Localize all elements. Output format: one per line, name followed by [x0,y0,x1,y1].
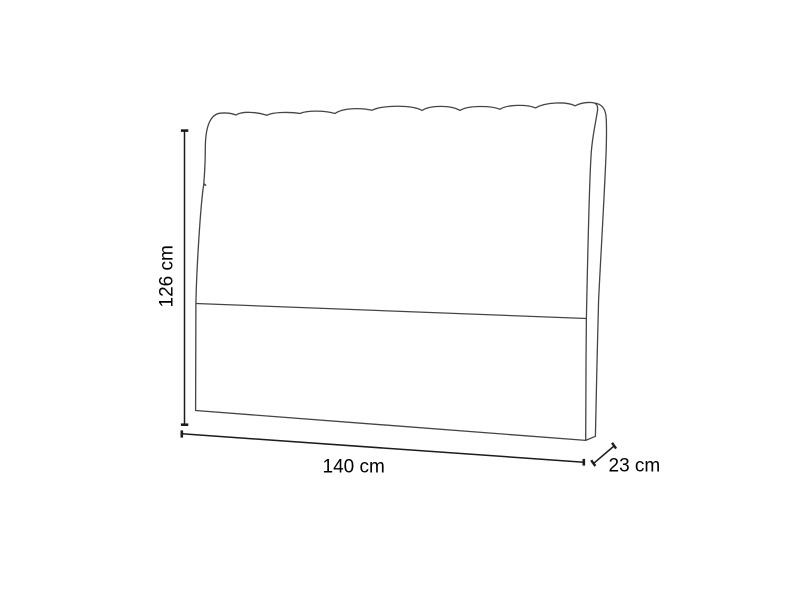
svg-text:140 cm: 140 cm [323,457,385,478]
svg-text:126 cm: 126 cm [157,245,178,307]
svg-text:23 cm: 23 cm [609,456,661,477]
